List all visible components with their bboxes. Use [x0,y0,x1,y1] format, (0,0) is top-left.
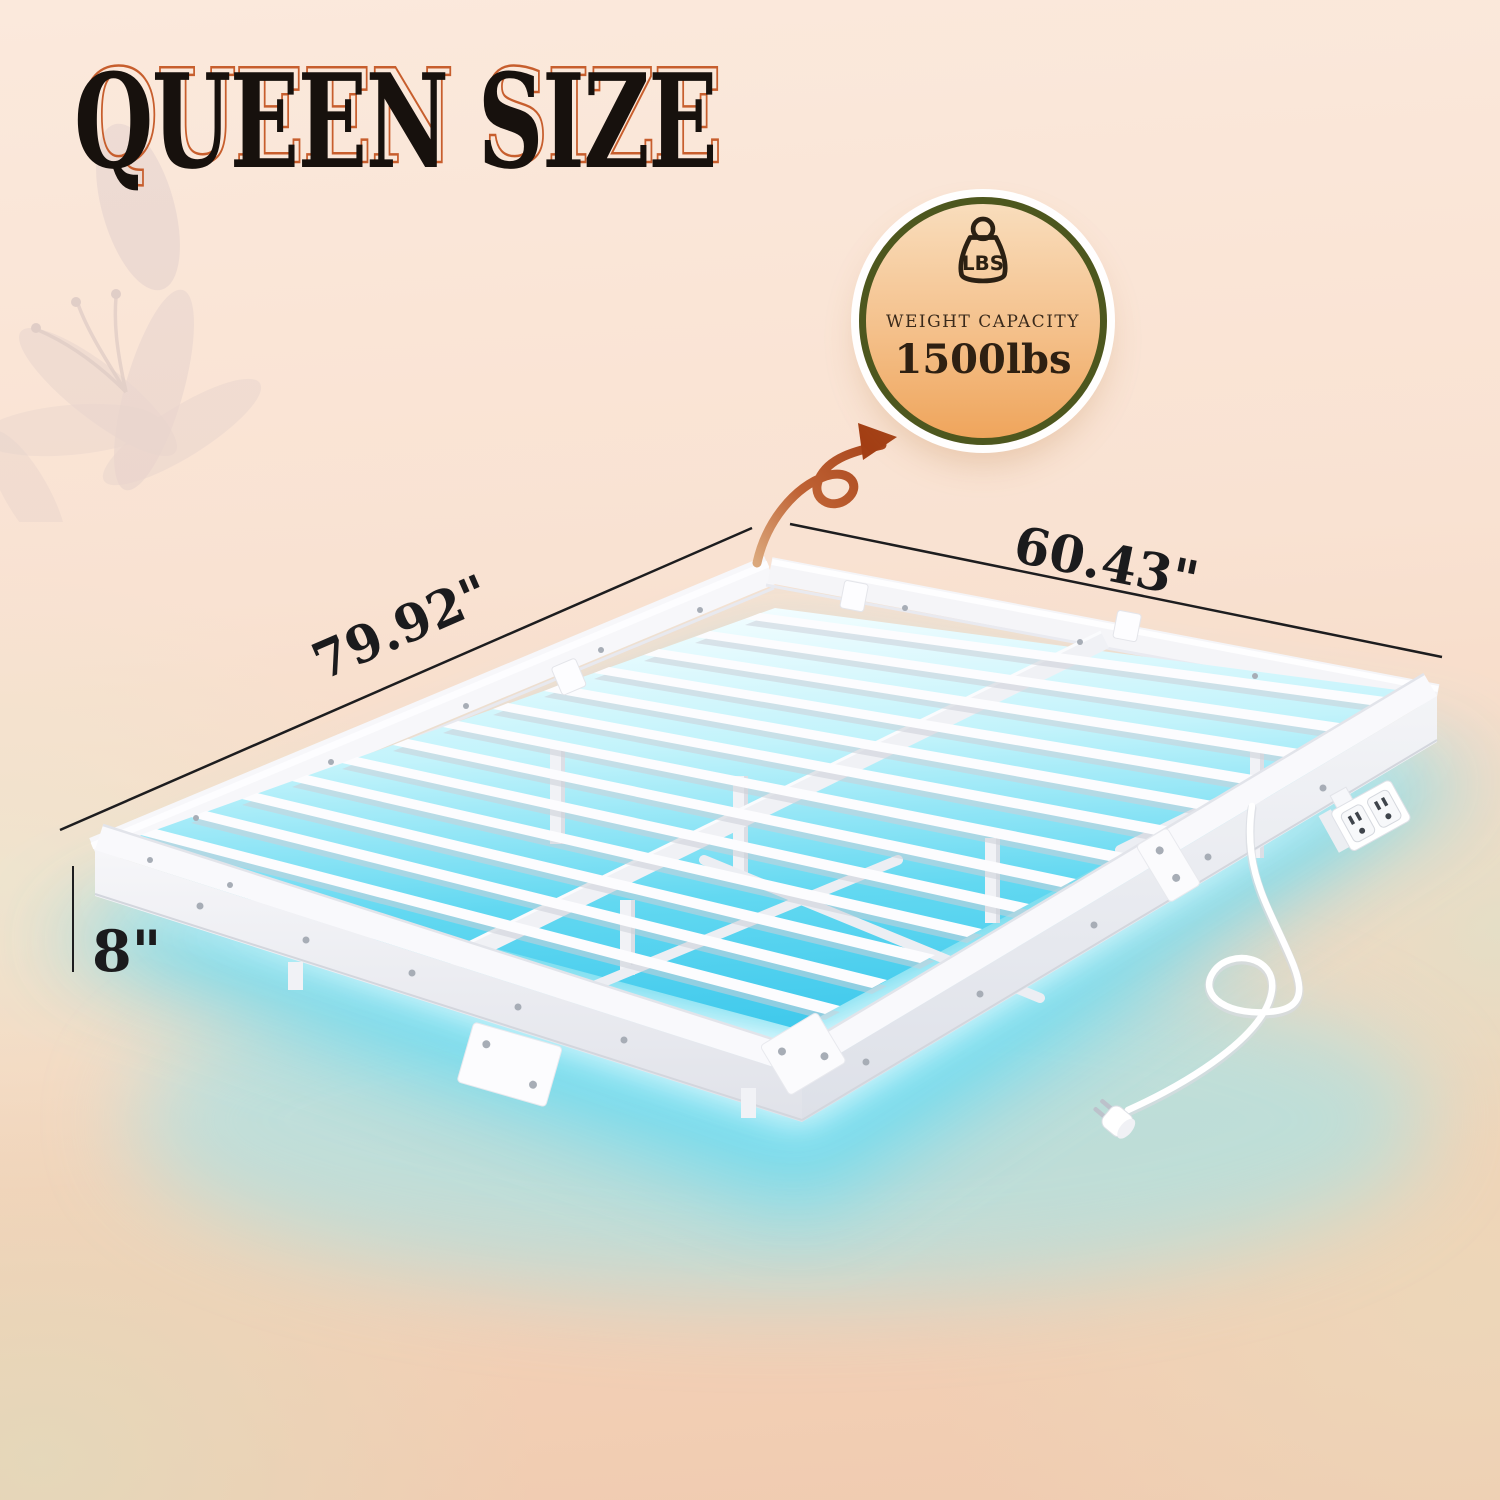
weight-icon: LBS [940,216,1026,302]
page-title: QUEEN SIZE QUEEN SIZE [74,57,992,207]
weight-capacity-badge: LBS WEIGHT CAPACITY 1500lbs [859,197,1107,445]
badge-caption: WEIGHT CAPACITY [886,312,1080,332]
bed-frame-scene [0,0,1500,1500]
badge-value: 1500lbs [894,336,1071,383]
product-infographic: QUEEN SIZE QUEEN SIZE 79.92" 60.43" 8" L… [0,0,1500,1500]
title-text: QUEEN SIZE [74,57,716,187]
weight-icon-label: LBS [962,252,1004,275]
dimension-height-label: 8" [92,918,161,985]
